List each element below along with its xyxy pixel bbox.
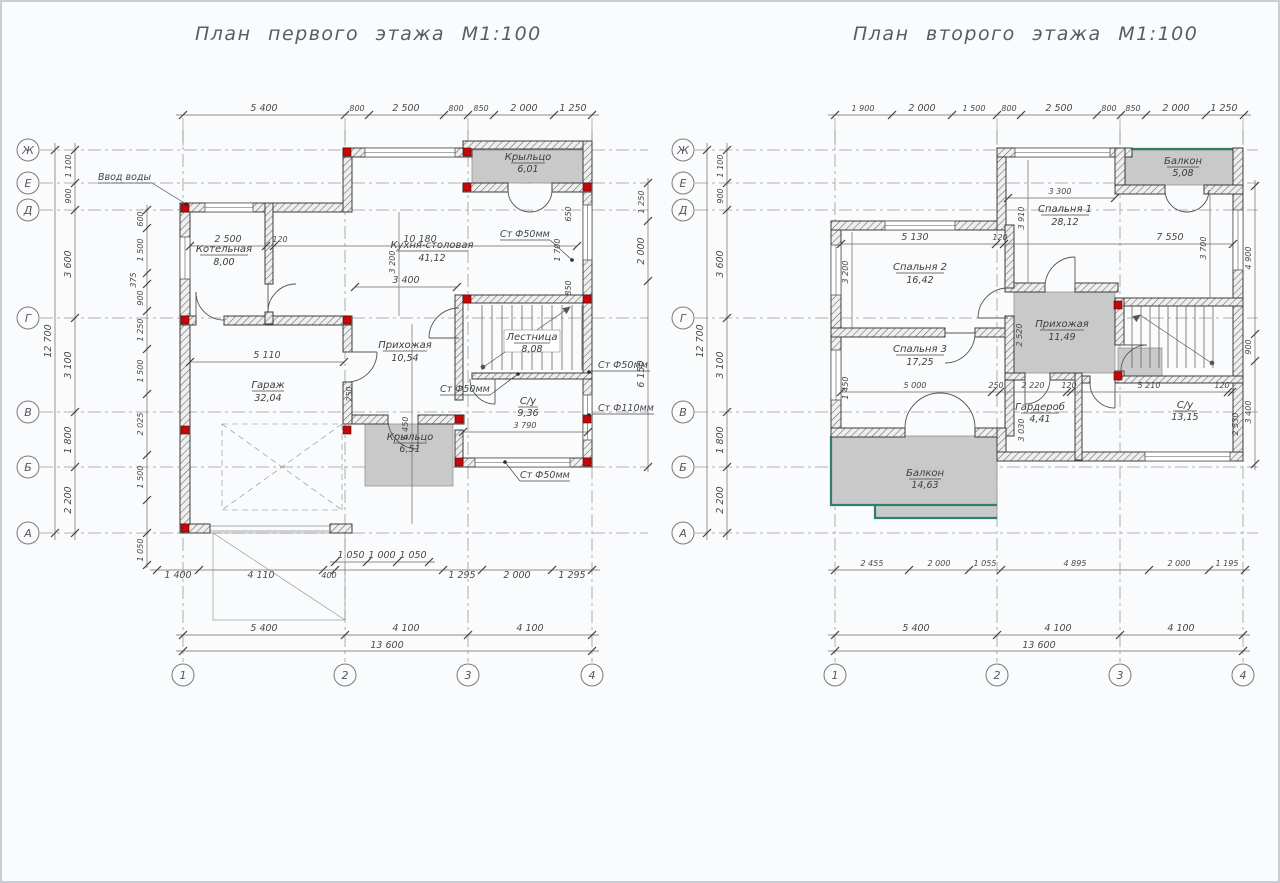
dim-label: 1 250: [136, 319, 145, 342]
dim-label: 2 220: [1022, 381, 1045, 390]
dim-label: 5 400: [902, 623, 929, 634]
dim-label: 2 520: [1015, 324, 1024, 347]
dim-label: 1 500: [963, 104, 986, 113]
axis-letter: Б: [679, 461, 687, 474]
dim-label: 4 100: [516, 623, 543, 634]
room-area: 6,01: [517, 164, 538, 175]
room-area: 4,41: [1029, 414, 1050, 425]
room-name: Прихожая: [1035, 319, 1089, 330]
row-axis-bubbles-plan2: Ж Е Д Г В Б А: [672, 139, 694, 544]
dim-label: 2 000: [636, 237, 647, 264]
dim-label: 2 500: [392, 103, 419, 114]
room-area: 32,04: [254, 393, 281, 404]
room-name: Спальня 3: [893, 344, 947, 355]
dim-label: 5 400: [250, 103, 277, 114]
dim-label: 3 600: [715, 250, 726, 277]
dim-label: 2 000: [1162, 103, 1189, 114]
plan-title: План первого этажа М1:100: [195, 23, 542, 45]
room-name: Балкон: [906, 468, 945, 479]
dim-label: 900: [64, 188, 73, 203]
dims-bottom-plan2: 2 455 2 000 1 055 4 895 2 000 1 195 5 40…: [828, 559, 1250, 655]
dim-label: 1 100: [64, 155, 73, 178]
dim-label: 850: [473, 104, 488, 113]
dims-right-plan2: 4 900 900 3 400: [1244, 180, 1259, 470]
dim-label: 2 500: [214, 234, 241, 245]
dim-label: 5 400: [250, 623, 277, 634]
dim-label: 2 025: [136, 413, 145, 436]
dim-label: 850: [564, 280, 573, 295]
col-axis-bubbles-plan1: 1 2 3 4: [172, 664, 603, 686]
annotation-pipe: Ст Ф50мм: [520, 470, 570, 481]
room-name: Крыльцо: [387, 432, 434, 443]
dims-bottom-plan1: 1 400 4 110 400 1 050 1 000 1 050 1 295 …: [150, 550, 600, 655]
axis-number: 1: [180, 669, 187, 682]
dim-label: 2 000: [510, 103, 537, 114]
axis-letter: Ж: [676, 144, 690, 157]
dim-label: 3 100: [715, 351, 726, 378]
room-area: 16,42: [906, 275, 933, 286]
room-name: Спальня 1: [1038, 204, 1092, 215]
dim-label: 3 700: [1199, 237, 1208, 260]
dim-label: 375: [129, 272, 138, 287]
room-name: С/у: [520, 396, 537, 407]
dim-label: 10 180: [403, 234, 436, 245]
room-area: 5,08: [1172, 168, 1193, 179]
dim-label: 4 100: [392, 623, 419, 634]
dims-right-plan1: 1 250 2 000 6 150: [636, 178, 652, 472]
dim-label: 1 250: [637, 191, 646, 214]
annotation-pipe: Ст Ф110мм: [598, 403, 654, 414]
dim-label: 1 295: [448, 570, 475, 581]
dim-label: 900: [716, 188, 725, 203]
dim-label: 12 700: [695, 324, 706, 357]
dim-label: 12 700: [43, 324, 54, 357]
dim-label: 7 550: [1156, 232, 1183, 243]
room-area: 9,36: [517, 408, 538, 419]
dim-label: 1 450: [841, 377, 850, 400]
room-area: 8,08: [521, 344, 542, 355]
axis-letter: Г: [25, 312, 32, 325]
annotation-pipe: Ст Ф50мм: [500, 229, 550, 240]
room-area: 41,12: [418, 253, 445, 264]
room-area: 17,25: [906, 357, 933, 368]
dim-label: 13 600: [1022, 640, 1055, 651]
dim-label: 5 210: [1138, 381, 1161, 390]
dim-label: 1 250: [559, 103, 586, 114]
dim-label: 1 250: [1210, 103, 1237, 114]
axis-letter: Д: [678, 204, 688, 217]
room-name: Крыльцо: [505, 152, 552, 163]
dim-label: 120: [1214, 381, 1229, 390]
dim-label: 120: [272, 235, 287, 244]
dim-label: 4 895: [1064, 559, 1087, 568]
room-area: 6,51: [399, 444, 420, 455]
room-name: С/у: [1177, 400, 1194, 411]
room-area: 8,00: [213, 257, 234, 268]
axis-letter: А: [23, 527, 32, 540]
row-axis-bubbles-plan1: Ж Е Д Г В Б А: [17, 139, 39, 544]
dim-label: 3 300: [1049, 187, 1072, 196]
dim-label: 2 530: [1231, 413, 1240, 436]
dim-label: 1 800: [715, 426, 726, 453]
annotation-pipe: Ст Ф50мм: [440, 384, 490, 395]
dim-label: 250: [988, 381, 1003, 390]
axis-letter: Б: [24, 461, 32, 474]
dim-label: 2 000: [1168, 559, 1191, 568]
dim-label: 3 790: [514, 421, 537, 430]
dim-label: 1 500: [136, 239, 145, 262]
dim-label: 600: [136, 211, 145, 226]
axis-number: 3: [465, 669, 472, 682]
dim-label: 4 100: [1044, 623, 1071, 634]
dim-label: 1 800: [63, 426, 74, 453]
dim-label: 1 050: [399, 550, 426, 561]
room-area: 11,49: [1048, 332, 1075, 343]
dim-label: 2 000: [908, 103, 935, 114]
dims-top-plan2: 1 900 2 000 1 500 800 2 500 800 850 2 00…: [828, 103, 1251, 146]
dim-label: 3 400: [1244, 401, 1253, 424]
axis-letter: А: [678, 527, 687, 540]
axis-number: 2: [994, 669, 1001, 682]
dim-label: 120: [992, 233, 1007, 242]
room-area: 14,63: [911, 480, 938, 491]
dim-label: 3 400: [392, 275, 419, 286]
room-name: Гараж: [251, 380, 284, 391]
dim-label: 2 455: [861, 559, 884, 568]
axis-number: 4: [1240, 669, 1247, 682]
dim-label: 650: [564, 206, 573, 221]
dims-top-plan1: 5 400 800 2 500 800 850 2 000 1 250: [176, 103, 599, 146]
axis-letter: В: [24, 406, 32, 419]
dim-label: 800: [1101, 104, 1116, 113]
col-axis-bubbles-plan2: 1 2 3 4: [824, 664, 1254, 686]
dim-label: 5 000: [904, 381, 927, 390]
grid-lines-plan2: [695, 130, 1258, 662]
dim-label: 1 050: [136, 539, 145, 562]
dim-label: 4 900: [1244, 247, 1253, 270]
room-name: Лестница: [506, 332, 558, 343]
dim-label: 3 600: [63, 250, 74, 277]
dim-label: 5 110: [253, 350, 280, 361]
room-name: Прихожая: [378, 340, 432, 351]
room-name: Гардероб: [1015, 401, 1065, 413]
dim-label: 1 500: [136, 466, 145, 489]
dim-label: 3 030: [1017, 419, 1026, 442]
plan-title: План второго этажа М1:100: [853, 23, 1198, 45]
dim-label: 1 050: [337, 550, 364, 561]
dim-label: 2 200: [63, 486, 74, 513]
dims-left-plan2: 12 700 1 100 900 3 600 3 100 1 800 2 200: [695, 143, 731, 540]
dim-label: 3 910: [1017, 207, 1026, 230]
garage-markings-plan1: [213, 424, 345, 620]
dim-label: 850: [1125, 104, 1140, 113]
dim-label: 13 600: [370, 640, 403, 651]
axis-number: 2: [342, 669, 349, 682]
dim-label: 3 200: [388, 251, 397, 274]
dim-label: 400: [321, 571, 336, 580]
dim-label: 4 110: [247, 570, 274, 581]
room-name: Балкон: [1164, 156, 1203, 167]
dims-left-plan1: 12 700 1 100 900 3 600 3 100 1 800 2 200…: [43, 143, 151, 569]
dim-label: 1 055: [974, 559, 997, 568]
dim-label: 3 200: [841, 261, 850, 284]
dim-label: 6 450: [401, 417, 410, 440]
axis-letter: Г: [680, 312, 687, 325]
dim-label: 250: [345, 386, 354, 401]
room-area: 10,54: [391, 353, 418, 364]
axis-letter: Д: [23, 204, 33, 217]
room-name: Спальня 2: [893, 262, 947, 273]
dim-label: 800: [349, 104, 364, 113]
blueprint-sheet: План первого этажа М1:100 План второго э…: [0, 0, 1280, 883]
dim-label: 2 500: [1045, 103, 1072, 114]
axis-number: 1: [832, 669, 839, 682]
dim-label: 900: [136, 290, 145, 305]
dim-label: 800: [1001, 104, 1016, 113]
dim-label: 1 400: [164, 570, 191, 581]
axis-number: 4: [589, 669, 596, 682]
dim-label: 1 000: [368, 550, 395, 561]
annotation-pipe: Ст Ф50мм: [598, 360, 648, 371]
axis-letter: Е: [25, 177, 32, 190]
dim-label: 120: [1061, 381, 1076, 390]
dim-label: 3 100: [63, 351, 74, 378]
dim-label: 5 130: [901, 232, 928, 243]
dim-label: 2 200: [715, 486, 726, 513]
dim-label: 1 295: [558, 570, 585, 581]
dim-label: 2 000: [503, 570, 530, 581]
dim-label: 900: [1244, 339, 1253, 354]
axis-letter: Ж: [21, 144, 35, 157]
dim-label: 1 500: [136, 360, 145, 383]
annotation-water-inlet: Ввод воды: [98, 172, 151, 183]
room-area: 28,12: [1051, 217, 1078, 228]
dim-label: 1 100: [716, 155, 725, 178]
axis-number: 3: [1117, 669, 1124, 682]
dim-label: 1 900: [852, 104, 875, 113]
axis-letter: В: [679, 406, 687, 419]
dim-label: 2 000: [928, 559, 951, 568]
dim-label: 1 195: [1216, 559, 1239, 568]
room-area: 13,15: [1171, 412, 1198, 423]
axis-letter: Е: [680, 177, 687, 190]
floor-plans-drawing: План первого этажа М1:100 План второго э…: [2, 2, 1278, 881]
dim-label: 4 100: [1167, 623, 1194, 634]
dim-label: 800: [448, 104, 463, 113]
